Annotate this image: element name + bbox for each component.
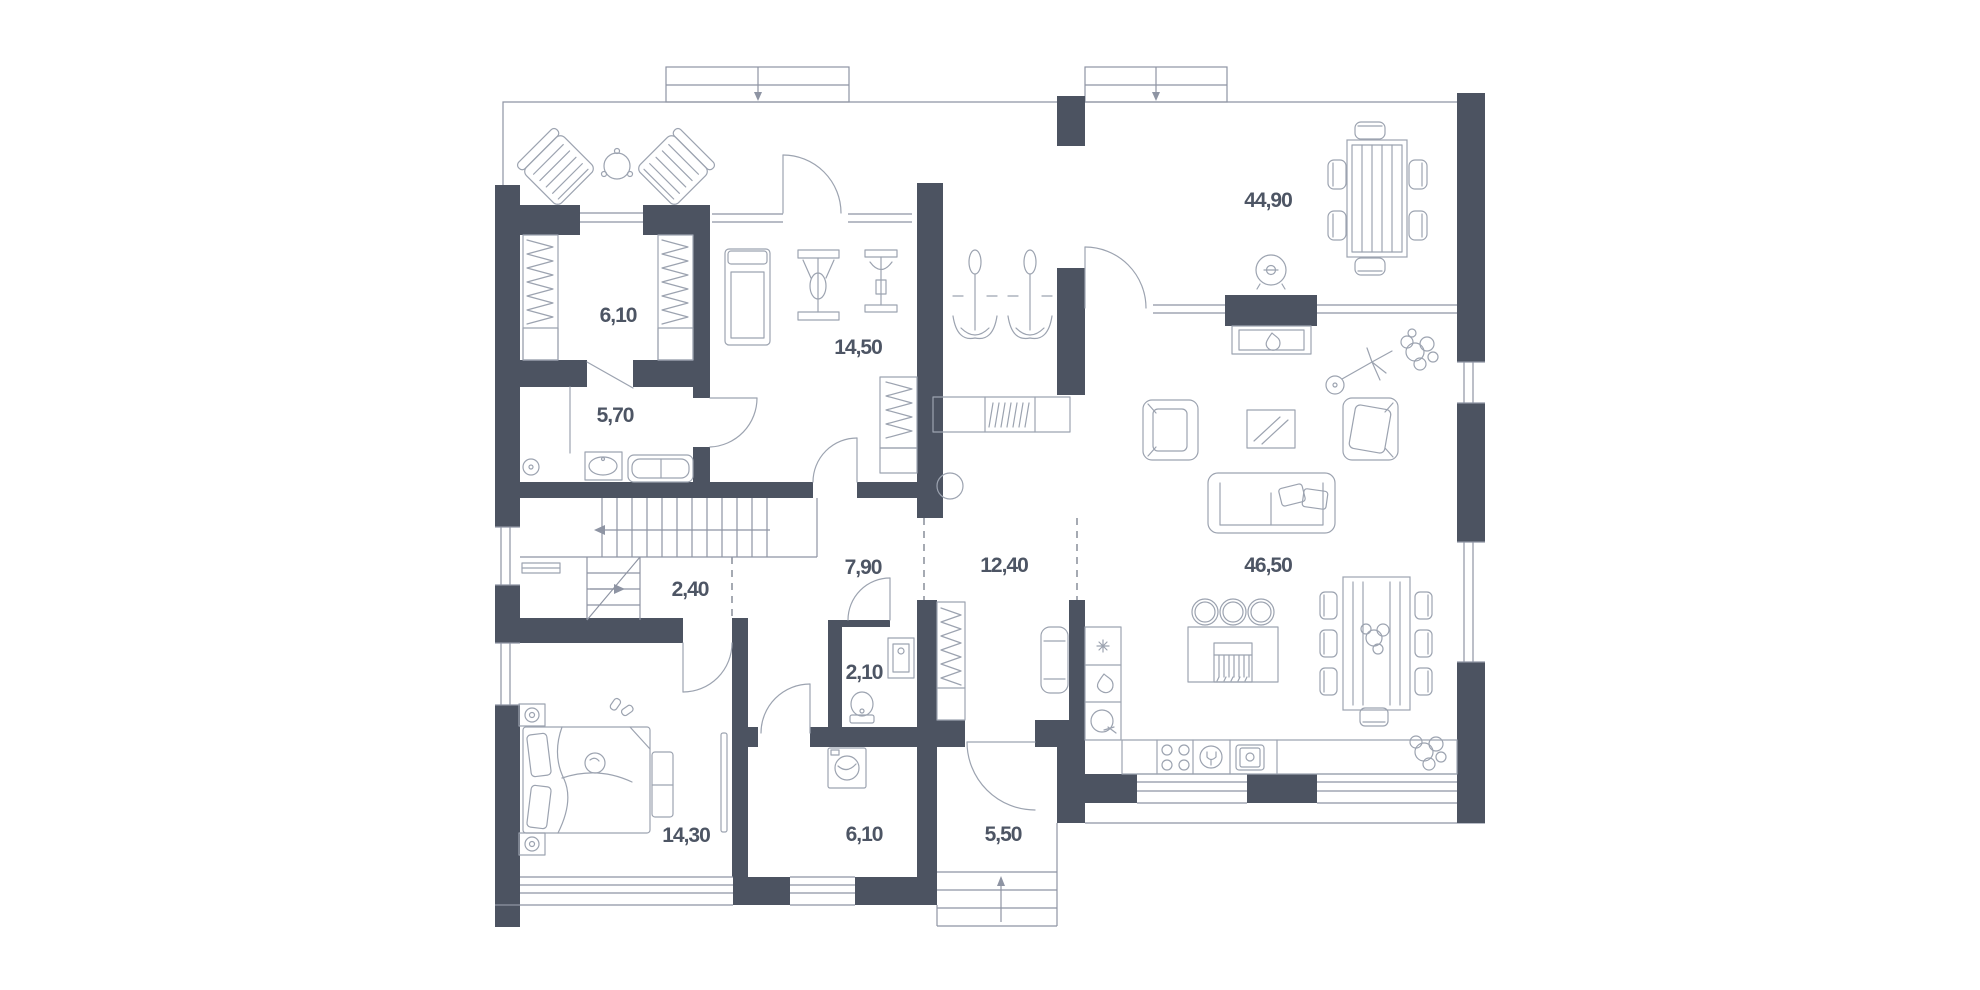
armchair — [1143, 400, 1198, 460]
window-living-top-right — [1317, 305, 1457, 313]
window-kitchen-bottom-left — [1137, 774, 1247, 803]
lounge-chair — [516, 127, 596, 207]
window-bedroom-bottom — [495, 877, 733, 905]
gym-wardrobe — [880, 377, 917, 473]
entry-bench — [1041, 627, 1068, 693]
gym-door — [813, 438, 857, 482]
bar-stool — [1192, 599, 1218, 625]
room-area-label: 5,50 — [985, 823, 1022, 846]
dining-chair — [1360, 708, 1388, 726]
living-terrace-door — [1085, 247, 1146, 308]
nightstand — [519, 704, 545, 726]
terrace-chair — [1355, 122, 1385, 139]
exercise-machine — [798, 250, 839, 320]
wardrobe — [523, 235, 558, 360]
room-area-label: 12,40 — [980, 554, 1028, 577]
fireplace-wall-block — [1225, 295, 1317, 326]
floor-plan-drawing: 6,10 5,70 14,50 44,90 2,40 7,90 12,40 46… — [0, 0, 1980, 990]
kitchen-counter — [1122, 740, 1457, 774]
terrace-chair — [1355, 258, 1385, 275]
bedroom-bench — [652, 752, 673, 817]
room-area-label: 5,70 — [597, 404, 634, 427]
floor-plan-canvas: 6,10 5,70 14,50 44,90 2,40 7,90 12,40 46… — [0, 0, 1980, 990]
bathtub — [628, 455, 693, 482]
plant — [1401, 329, 1438, 370]
plant — [1410, 736, 1446, 770]
oven-flame-icon — [1097, 674, 1113, 693]
wardrobe — [658, 235, 693, 360]
room-area-label: 14,50 — [834, 336, 882, 359]
window-living-right-lower — [1457, 542, 1485, 662]
dining-chair — [1415, 668, 1432, 695]
bed — [523, 727, 650, 833]
bedroom-door — [683, 643, 732, 692]
terrace-chair — [1328, 211, 1346, 240]
window-laundry-bottom — [790, 877, 855, 905]
kitchen-sink — [1236, 745, 1264, 770]
entrance-canopy-left — [666, 67, 849, 102]
hall-wardrobe — [937, 602, 965, 720]
gym-terrace-door — [783, 155, 841, 213]
fireplace — [1232, 326, 1311, 354]
window-closet-top — [580, 213, 643, 222]
room-area-label: 14,30 — [662, 824, 710, 847]
bathroom-door — [710, 398, 757, 447]
sofa — [1208, 473, 1335, 533]
grill — [1256, 255, 1286, 289]
shower — [522, 387, 570, 573]
nightstand — [519, 833, 545, 855]
terrace-table — [1347, 140, 1407, 257]
dining-chair — [1320, 592, 1337, 619]
dining-chair — [1320, 630, 1337, 657]
dining-chair — [1415, 630, 1432, 657]
kitchen-appliance-column — [1085, 627, 1121, 740]
kitchen-island — [1188, 627, 1278, 682]
wall-tv — [721, 733, 727, 832]
window-stair-left — [495, 527, 520, 585]
bar-stool — [1248, 599, 1274, 625]
entry-door — [967, 742, 1035, 810]
window-bedroom-left — [495, 643, 520, 705]
closet-sliding-door — [587, 362, 633, 388]
bar-stool — [1220, 599, 1246, 625]
lat-tower — [865, 250, 897, 312]
terrace-chair — [1409, 160, 1427, 189]
floor-lamp — [1326, 348, 1392, 394]
laundry-door — [761, 684, 810, 733]
boiler-icon — [1091, 710, 1116, 733]
side-table — [602, 149, 633, 180]
window-gym-sill-right — [848, 214, 912, 222]
exercise-bike — [1008, 250, 1052, 339]
entrance-canopy-right — [1085, 67, 1227, 102]
dining-table — [1343, 577, 1410, 710]
lounge-chair — [636, 127, 716, 207]
treadmill — [725, 249, 770, 345]
window-living-right-upper — [1457, 362, 1485, 403]
entrance-arrow-icon — [1152, 85, 1160, 101]
staircase — [520, 498, 817, 620]
room-area-label: 7,90 — [845, 556, 882, 579]
window-kitchen-bottom-right — [1317, 774, 1457, 803]
room-area-label: 2,40 — [672, 578, 709, 601]
dining-chair — [1415, 592, 1432, 619]
washing-machine — [828, 748, 866, 788]
terrace-chair — [1328, 160, 1346, 189]
room-area-label: 6,10 — [600, 304, 637, 327]
stair-direction-arrow-low — [590, 584, 625, 594]
wc-sink — [888, 638, 914, 678]
room-area-label: 6,10 — [846, 823, 883, 846]
dining-chair — [1320, 668, 1337, 695]
stair-direction-arrow-up — [594, 525, 770, 535]
toilet — [850, 692, 874, 723]
slippers — [609, 697, 634, 716]
cooktop — [1162, 745, 1189, 770]
room-area-label: 44,90 — [1244, 189, 1292, 212]
window-living-top-left — [1153, 305, 1225, 313]
coffee-table — [1247, 410, 1295, 448]
entrance-arrow-icon — [754, 85, 762, 101]
room-area-label: 2,10 — [846, 661, 883, 684]
freezer-icon — [1097, 640, 1109, 652]
entry-arrow-icon — [997, 876, 1005, 922]
armchair — [1343, 398, 1398, 460]
terrace-chair — [1409, 211, 1427, 240]
exercise-bike — [953, 250, 997, 339]
bathroom-sink — [585, 452, 622, 480]
dishwasher — [1200, 746, 1222, 768]
wc-door — [848, 578, 890, 620]
room-area-label: 46,50 — [1244, 554, 1292, 577]
corridor-wardrobe — [933, 397, 1070, 432]
window-gym-sill-left — [712, 214, 783, 222]
